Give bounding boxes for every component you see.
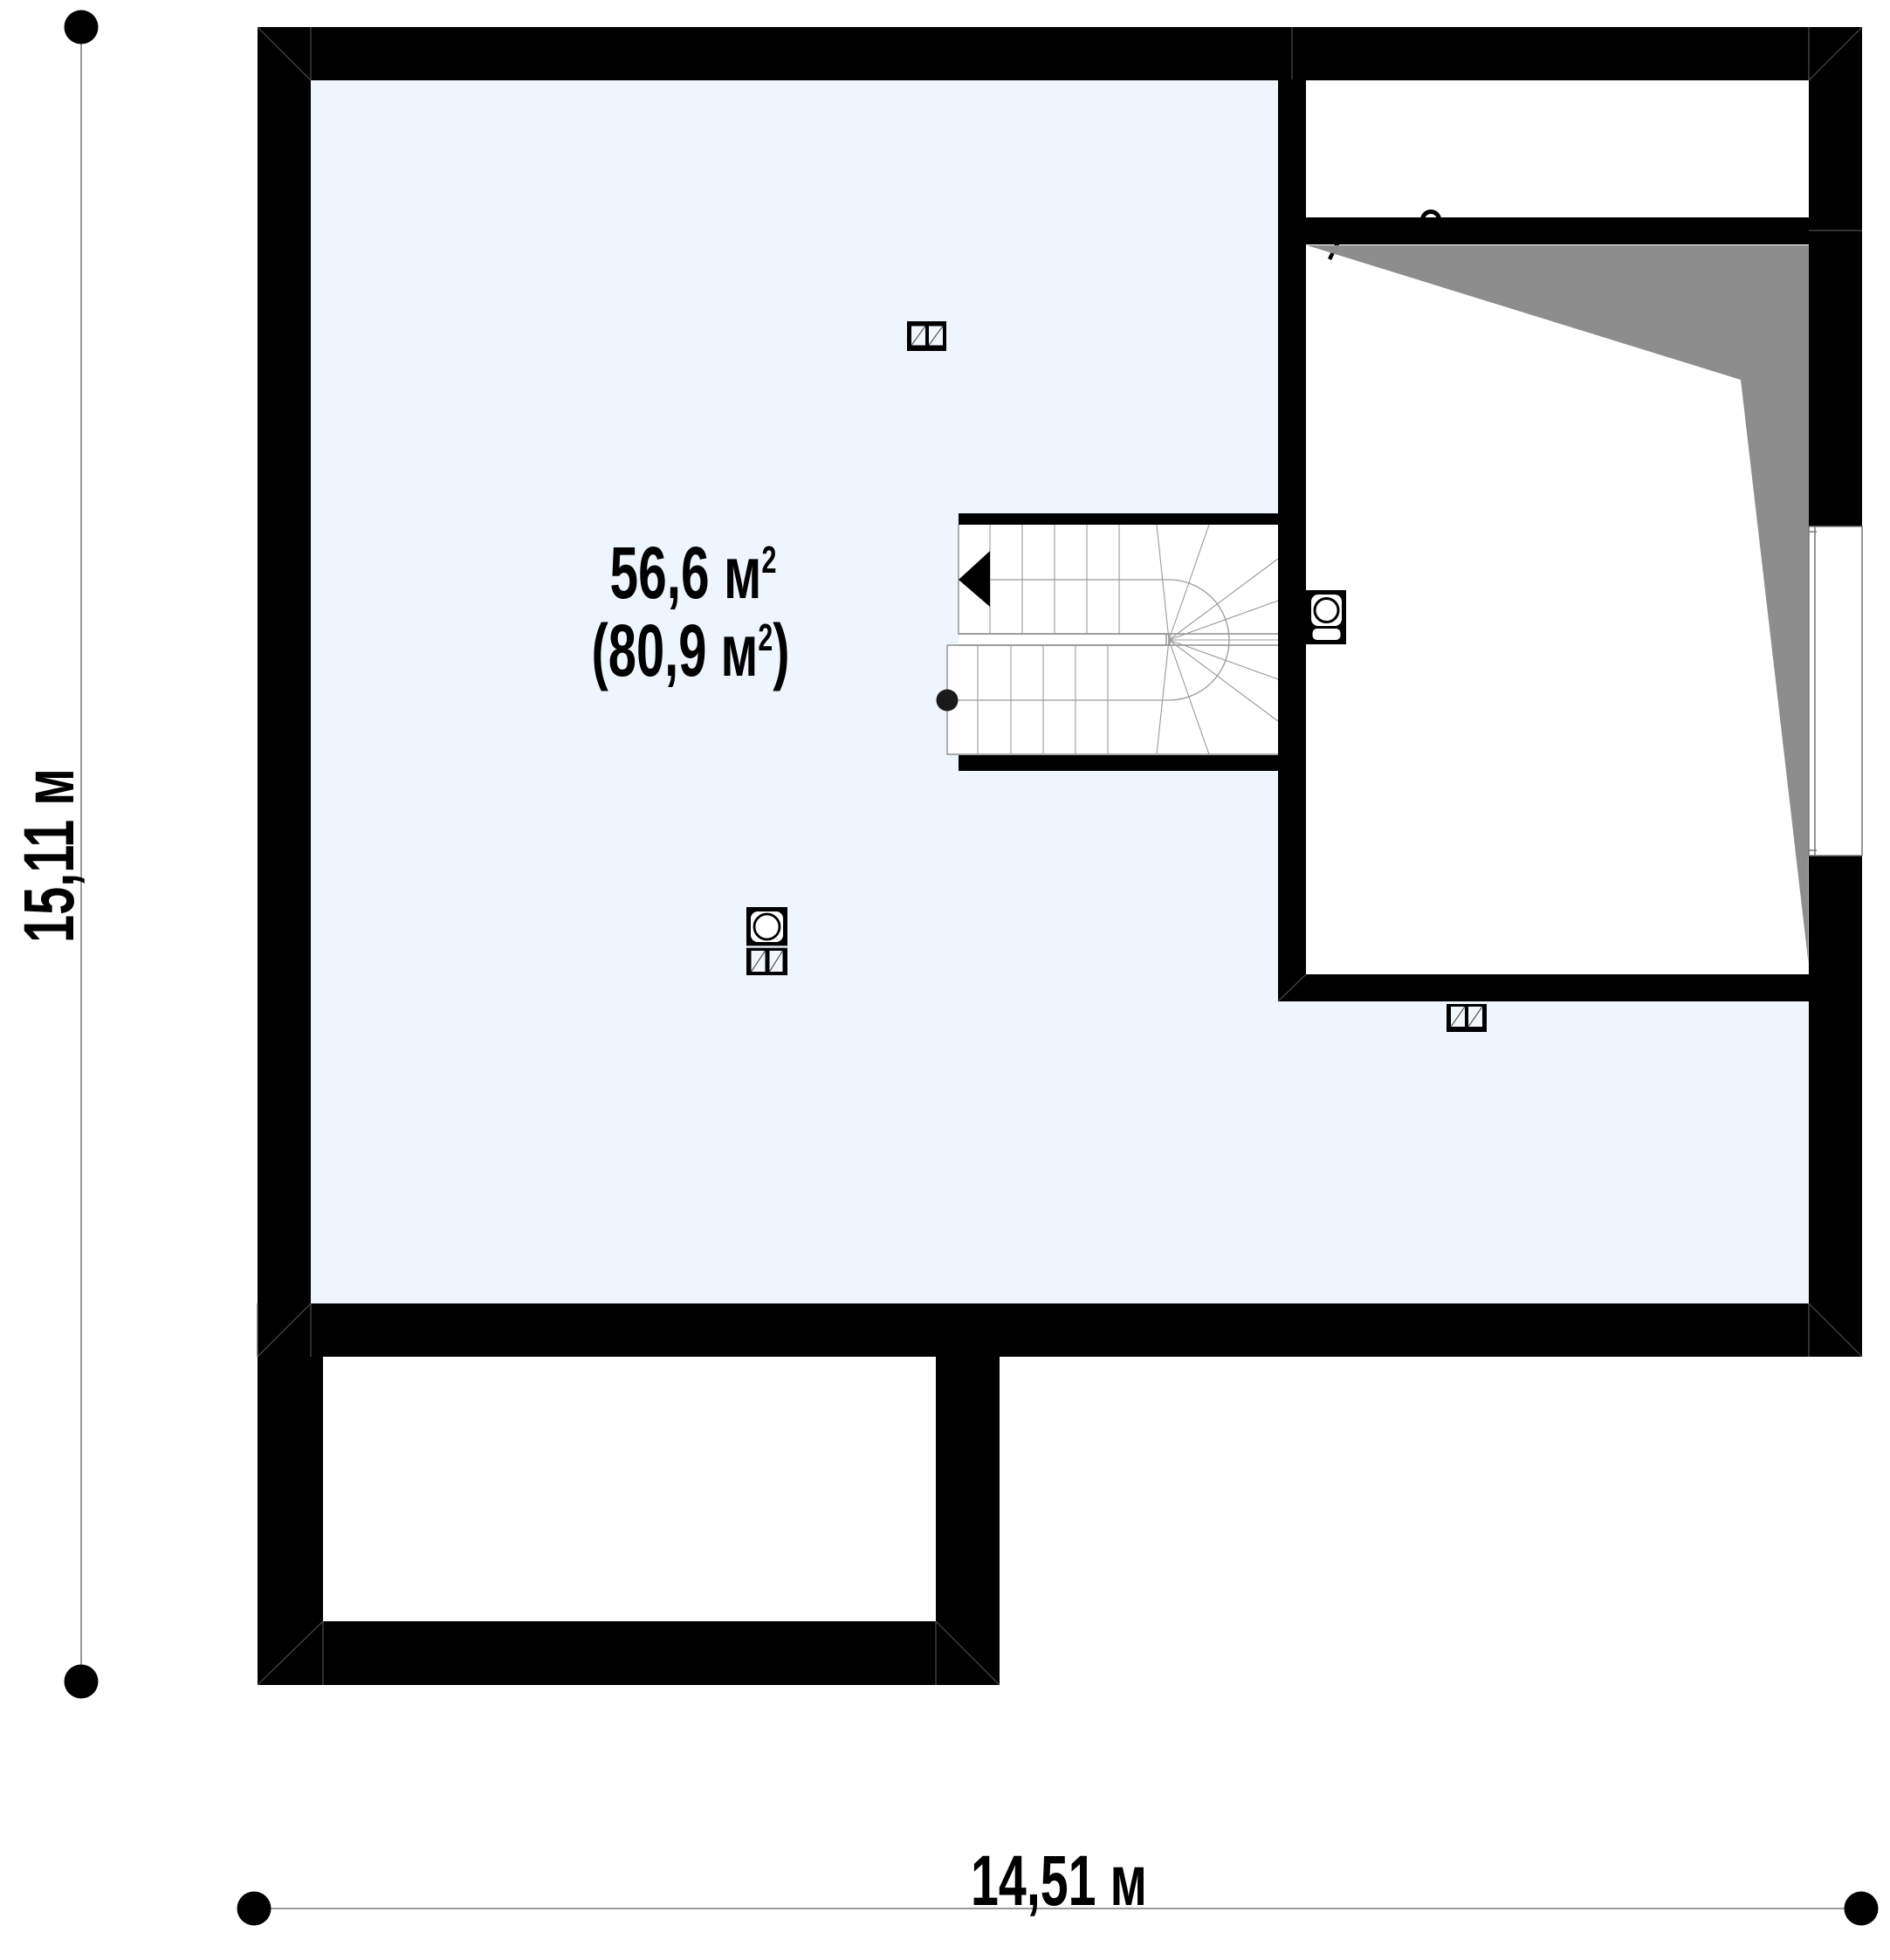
svg-text:56,6 м2: 56,6 м2 <box>610 532 777 614</box>
svg-text:15,11 м: 15,11 м <box>10 768 89 943</box>
svg-text:14,51 м: 14,51 м <box>971 1841 1147 1921</box>
